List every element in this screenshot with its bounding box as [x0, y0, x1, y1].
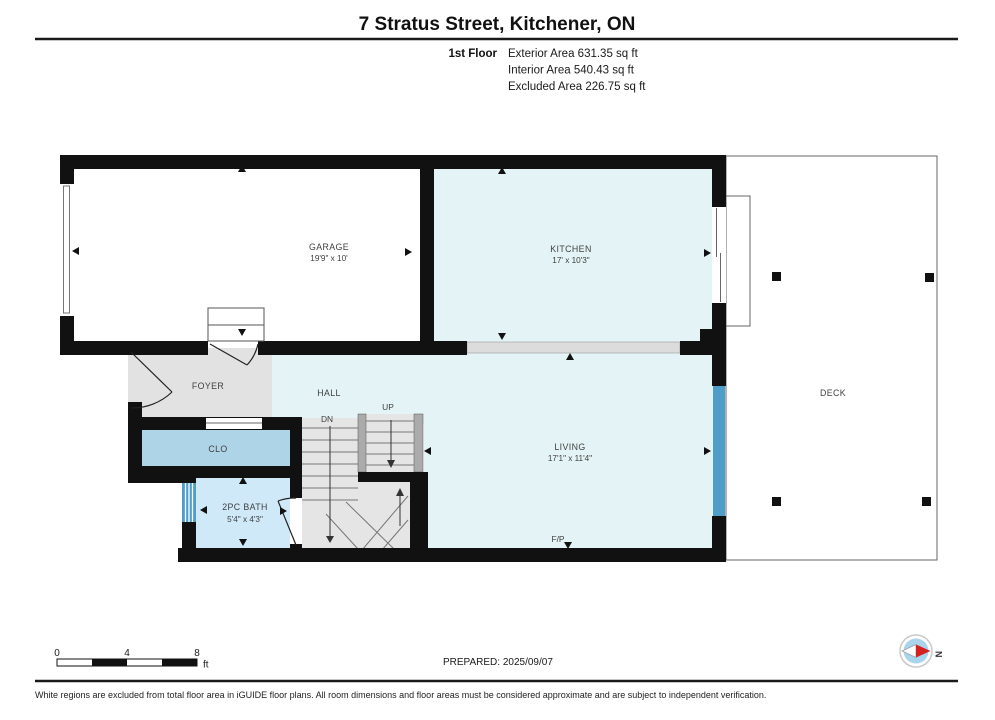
- scale-tick-0: 0: [54, 648, 60, 659]
- hall-label: HALL: [317, 388, 341, 398]
- stairs-up-label: UP: [382, 402, 394, 412]
- stairs-dn-fill: [296, 418, 358, 552]
- hall-fill: [272, 348, 425, 424]
- living-dims: 17'1" x 11'4": [548, 454, 592, 463]
- bath-label: 2PC BATH: [222, 502, 268, 512]
- kitchen-halfwall: [467, 342, 680, 353]
- living-window: [713, 386, 725, 516]
- prepared-date: PREPARED: 2025/09/07: [443, 657, 553, 668]
- scale-bar-seg2: [162, 659, 197, 666]
- deck-door-landing: [726, 196, 750, 326]
- kitchen-fill: [425, 160, 717, 350]
- bath-door-opening: [290, 498, 302, 544]
- garage-dims: 19'9" x 10': [310, 254, 348, 263]
- garage-step: [208, 308, 264, 341]
- garage-label: GARAGE: [309, 242, 349, 252]
- bath-dims: 5'4" x 4'3": [227, 515, 263, 524]
- bath-fill: [194, 476, 292, 550]
- scale-unit: ft: [203, 660, 209, 671]
- scale-tick-4: 4: [124, 648, 130, 659]
- floor-label: 1st Floor: [448, 48, 497, 60]
- foyer-label: FOYER: [192, 381, 224, 391]
- deck-label: DECK: [820, 388, 846, 398]
- scale-bar-seg1: [92, 659, 127, 666]
- living-label: LIVING: [554, 442, 585, 452]
- interior-area: Interior Area 540.43 sq ft: [508, 65, 635, 77]
- deck-area: [726, 156, 937, 560]
- disclaimer-text: White regions are excluded from total fl…: [35, 690, 766, 700]
- page-title: 7 Stratus Street, Kitchener, ON: [359, 14, 636, 35]
- excluded-area: Excluded Area 226.75 sq ft: [508, 81, 646, 93]
- closet-label: CLO: [208, 444, 227, 454]
- floorplan-canvas: 7 Stratus Street, Kitchener, ON 1st Floo…: [0, 0, 995, 720]
- kitchen-label: KITCHEN: [550, 244, 591, 254]
- stairs-dn-label: DN: [321, 414, 333, 424]
- fireplace-label: F/P: [551, 534, 564, 544]
- deck-outline: [726, 156, 937, 560]
- stairs-up-rail-right: [414, 414, 423, 472]
- compass-north-label: N: [934, 651, 944, 658]
- exterior-area: Exterior Area 631.35 sq ft: [508, 48, 639, 60]
- floorplan-page: 7 Stratus Street, Kitchener, ON 1st Floo…: [0, 0, 995, 720]
- scale-tick-8: 8: [194, 648, 200, 659]
- garage-door-panel: [64, 186, 70, 313]
- patio-slider-opening: [712, 207, 726, 303]
- kitchen-dims: 17' x 10'3": [552, 256, 590, 265]
- stairs-up-rail-left: [358, 414, 366, 472]
